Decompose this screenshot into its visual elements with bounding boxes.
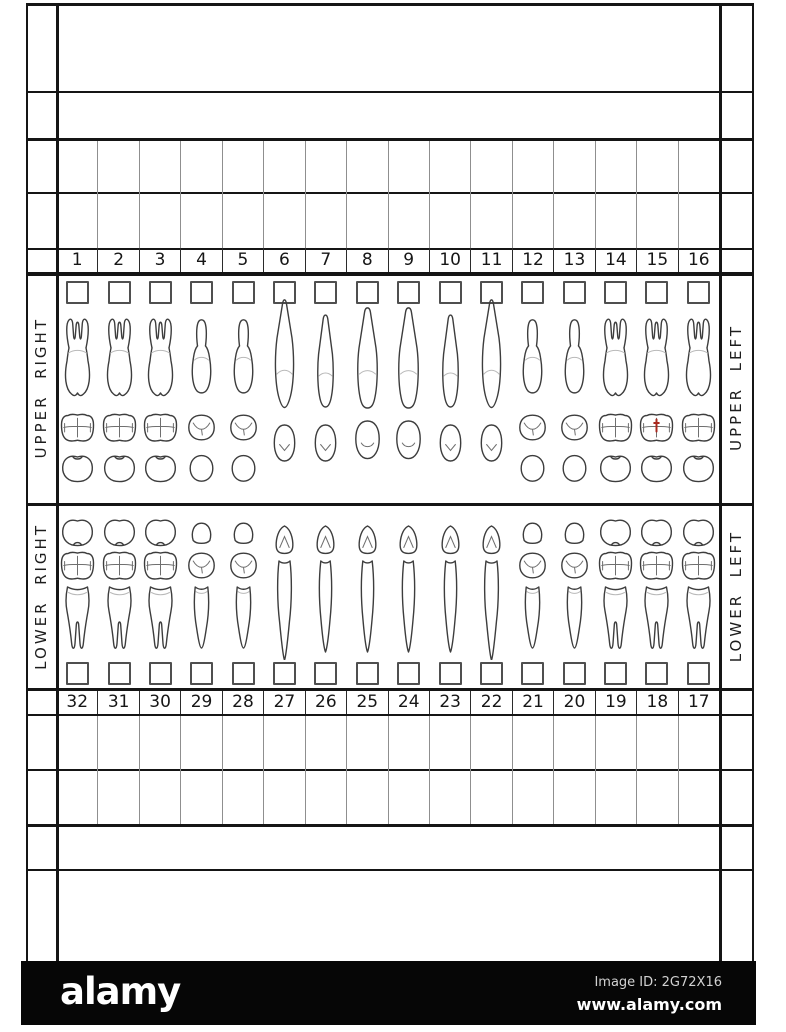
tooth-number-cell: 12 bbox=[513, 248, 554, 272]
checkbox-tooth-24[interactable] bbox=[397, 662, 420, 685]
tooth-illustration-4 bbox=[181, 294, 222, 494]
note-cell-top-2[interactable] bbox=[98, 141, 139, 248]
tooth-illustration-16 bbox=[678, 294, 719, 494]
tooth-illustration-22 bbox=[471, 512, 512, 660]
grid-line bbox=[26, 272, 753, 276]
tooth-number-cell: 7 bbox=[306, 248, 347, 272]
tooth-number-cell: 28 bbox=[223, 691, 264, 714]
checkbox-cell bbox=[678, 659, 719, 685]
tooth-illustration-2 bbox=[98, 294, 139, 494]
checkbox-cell bbox=[264, 659, 305, 685]
checkbox-cell bbox=[98, 659, 139, 685]
note-cell-bottom-2[interactable] bbox=[98, 716, 139, 824]
tooth-illustration-29 bbox=[181, 512, 222, 660]
note-cell-top-13[interactable] bbox=[554, 141, 595, 248]
note-cell-bottom-3[interactable] bbox=[140, 716, 181, 824]
tooth-illustration-25 bbox=[347, 512, 388, 660]
tooth-illustration-1 bbox=[57, 294, 98, 494]
note-cell-bottom-8[interactable] bbox=[347, 716, 388, 824]
tooth-illustration-18 bbox=[636, 512, 677, 660]
tooth-illustration-3 bbox=[140, 294, 181, 494]
checkbox-cell bbox=[554, 659, 595, 685]
note-cell-bottom-6[interactable] bbox=[264, 716, 305, 824]
tooth-number-cell: 21 bbox=[513, 691, 554, 714]
note-cell-bottom-14[interactable] bbox=[596, 716, 637, 824]
checkbox-cell bbox=[512, 659, 553, 685]
note-cell-top-5[interactable] bbox=[223, 141, 264, 248]
checkbox-cell bbox=[595, 659, 636, 685]
website-text: www.alamy.com bbox=[577, 993, 722, 1016]
note-cell-bottom-15[interactable] bbox=[637, 716, 678, 824]
tooth-number-cell: 2 bbox=[98, 248, 139, 272]
label-lower-left: LOWER LEFT bbox=[719, 506, 753, 686]
checkbox-cell bbox=[181, 659, 222, 685]
tooth-illustration-14 bbox=[595, 294, 636, 494]
tooth-number-cell: 25 bbox=[347, 691, 388, 714]
tooth-illustration-27 bbox=[264, 512, 305, 660]
tooth-number-cell: 9 bbox=[389, 248, 430, 272]
note-cell-bottom-12[interactable] bbox=[513, 716, 554, 824]
upper-tooth-number-row: 12345678910111213141516 bbox=[57, 248, 719, 272]
image-id-text: Image ID: 2G72X16 bbox=[577, 974, 722, 993]
tooth-number-cell: 18 bbox=[637, 691, 678, 714]
tooth-number-cell: 26 bbox=[306, 691, 347, 714]
upper-teeth-illustrations bbox=[57, 294, 719, 494]
dental-chart-page: 12345678910111213141516 3231302928272625… bbox=[0, 0, 786, 1032]
checkbox-tooth-23[interactable] bbox=[439, 662, 462, 685]
note-cell-bottom-9[interactable] bbox=[389, 716, 430, 824]
note-cell-bottom-5[interactable] bbox=[223, 716, 264, 824]
tooth-illustration-32 bbox=[57, 512, 98, 660]
checkbox-tooth-18[interactable] bbox=[645, 662, 668, 685]
tooth-illustration-24 bbox=[388, 512, 429, 660]
tooth-number-cell: 20 bbox=[554, 691, 595, 714]
tooth-illustration-31 bbox=[98, 512, 139, 660]
note-cell-top-6[interactable] bbox=[264, 141, 305, 248]
tooth-number-cell: 8 bbox=[347, 248, 388, 272]
lower-checkbox-row bbox=[57, 659, 719, 685]
tooth-illustration-17 bbox=[678, 512, 719, 660]
checkbox-cell bbox=[429, 659, 470, 685]
note-cell-top-12[interactable] bbox=[513, 141, 554, 248]
note-cell-top-1[interactable] bbox=[57, 141, 98, 248]
tooth-illustration-8 bbox=[347, 294, 388, 494]
tooth-number-cell: 29 bbox=[181, 691, 222, 714]
tooth-illustration-6 bbox=[264, 294, 305, 494]
label-upper-left-text: UPPER LEFT bbox=[727, 324, 745, 451]
tooth-illustration-20 bbox=[554, 512, 595, 660]
tooth-illustration-10 bbox=[429, 294, 470, 494]
note-cell-bottom-16[interactable] bbox=[679, 716, 719, 824]
tooth-illustration-26 bbox=[305, 512, 346, 660]
note-cell-top-10[interactable] bbox=[430, 141, 471, 248]
note-cell-bottom-13[interactable] bbox=[554, 716, 595, 824]
checkbox-cell bbox=[57, 659, 98, 685]
note-cell-top-11[interactable] bbox=[471, 141, 512, 248]
checkbox-tooth-28[interactable] bbox=[232, 662, 255, 685]
checkbox-tooth-31[interactable] bbox=[108, 662, 131, 685]
checkbox-tooth-26[interactable] bbox=[314, 662, 337, 685]
checkbox-tooth-29[interactable] bbox=[190, 662, 213, 685]
checkbox-tooth-22[interactable] bbox=[480, 662, 503, 685]
checkbox-cell bbox=[388, 659, 429, 685]
label-upper-right: UPPER RIGHT bbox=[26, 275, 56, 500]
notes-row-top-2[interactable] bbox=[57, 93, 719, 138]
notes-row-bottom-1[interactable] bbox=[57, 827, 719, 869]
checkbox-tooth-19[interactable] bbox=[604, 662, 627, 685]
tooth-illustration-21 bbox=[512, 512, 553, 660]
note-cell-top-14[interactable] bbox=[596, 141, 637, 248]
note-cell-top-3[interactable] bbox=[140, 141, 181, 248]
note-cell-top-9[interactable] bbox=[389, 141, 430, 248]
label-upper-left: UPPER LEFT bbox=[719, 275, 753, 500]
tooth-number-cell: 5 bbox=[223, 248, 264, 272]
checkbox-cell bbox=[223, 659, 264, 685]
tooth-illustration-5 bbox=[223, 294, 264, 494]
tooth-number-cell: 31 bbox=[98, 691, 139, 714]
tooth-number-cell: 22 bbox=[471, 691, 512, 714]
label-lower-left-text: LOWER LEFT bbox=[727, 530, 745, 662]
checkbox-tooth-27[interactable] bbox=[273, 662, 296, 685]
note-cell-top-7[interactable] bbox=[306, 141, 347, 248]
tooth-number-cell: 19 bbox=[596, 691, 637, 714]
checkbox-tooth-17[interactable] bbox=[687, 662, 710, 685]
tooth-illustration-9 bbox=[388, 294, 429, 494]
tooth-illustration-12 bbox=[512, 294, 553, 494]
grid-line bbox=[26, 503, 753, 506]
tooth-number-cell: 14 bbox=[596, 248, 637, 272]
notes-row-bottom-2[interactable] bbox=[57, 871, 719, 959]
tooth-number-cell: 6 bbox=[264, 248, 305, 272]
tooth-number-cell: 24 bbox=[389, 691, 430, 714]
checkbox-cell bbox=[471, 659, 512, 685]
tooth-number-cell: 10 bbox=[430, 248, 471, 272]
note-cell-bottom-7[interactable] bbox=[306, 716, 347, 824]
checkbox-cell bbox=[140, 659, 181, 685]
tooth-illustration-19 bbox=[595, 512, 636, 660]
tooth-illustration-15 bbox=[636, 294, 677, 494]
tooth-illustration-7 bbox=[305, 294, 346, 494]
note-cell-bottom-10[interactable] bbox=[430, 716, 471, 824]
tooth-number-cell: 23 bbox=[430, 691, 471, 714]
checkbox-tooth-20[interactable] bbox=[563, 662, 586, 685]
tooth-number-cell: 15 bbox=[637, 248, 678, 272]
label-upper-right-text: UPPER RIGHT bbox=[32, 317, 50, 458]
checkbox-tooth-25[interactable] bbox=[356, 662, 379, 685]
tooth-number-cell: 27 bbox=[264, 691, 305, 714]
tooth-number-cell: 17 bbox=[679, 691, 719, 714]
tooth-illustration-11 bbox=[471, 294, 512, 494]
tooth-illustration-28 bbox=[223, 512, 264, 660]
tooth-number-cell: 32 bbox=[57, 691, 98, 714]
note-cell-bottom-1[interactable] bbox=[57, 716, 98, 824]
footer-info: Image ID: 2G72X16 www.alamy.com bbox=[577, 974, 722, 1016]
checkbox-cell bbox=[347, 659, 388, 685]
checkbox-cell bbox=[636, 659, 677, 685]
grid-band-top bbox=[57, 141, 719, 248]
tooth-illustration-13 bbox=[554, 294, 595, 494]
lower-teeth-illustrations bbox=[57, 512, 719, 660]
note-cell-top-8[interactable] bbox=[347, 141, 388, 248]
lower-tooth-number-row: 32313029282726252423222120191817 bbox=[57, 691, 719, 714]
tooth-number-cell: 30 bbox=[140, 691, 181, 714]
label-lower-right: LOWER RIGHT bbox=[26, 506, 56, 686]
watermark-footer: alamy Image ID: 2G72X16 www.alamy.com bbox=[21, 961, 756, 1025]
checkbox-tooth-32[interactable] bbox=[66, 662, 89, 685]
checkbox-cell bbox=[305, 659, 346, 685]
tooth-number-cell: 3 bbox=[140, 248, 181, 272]
grid-band-bottom bbox=[57, 716, 719, 824]
checkbox-tooth-21[interactable] bbox=[521, 662, 544, 685]
checkbox-tooth-30[interactable] bbox=[149, 662, 172, 685]
tooth-illustration-30 bbox=[140, 512, 181, 660]
tooth-number-cell: 13 bbox=[554, 248, 595, 272]
label-lower-right-text: LOWER RIGHT bbox=[32, 523, 50, 670]
note-cell-top-16[interactable] bbox=[679, 141, 719, 248]
tooth-number-cell: 1 bbox=[57, 248, 98, 272]
notes-row-top-1[interactable] bbox=[57, 6, 719, 91]
tooth-number-cell: 11 bbox=[471, 248, 512, 272]
note-cell-bottom-4[interactable] bbox=[181, 716, 222, 824]
alamy-logo: alamy bbox=[60, 973, 180, 1010]
note-cell-top-4[interactable] bbox=[181, 141, 222, 248]
note-cell-top-15[interactable] bbox=[637, 141, 678, 248]
tooth-illustration-23 bbox=[429, 512, 470, 660]
tooth-number-cell: 4 bbox=[181, 248, 222, 272]
note-cell-bottom-11[interactable] bbox=[471, 716, 512, 824]
tooth-number-cell: 16 bbox=[679, 248, 719, 272]
